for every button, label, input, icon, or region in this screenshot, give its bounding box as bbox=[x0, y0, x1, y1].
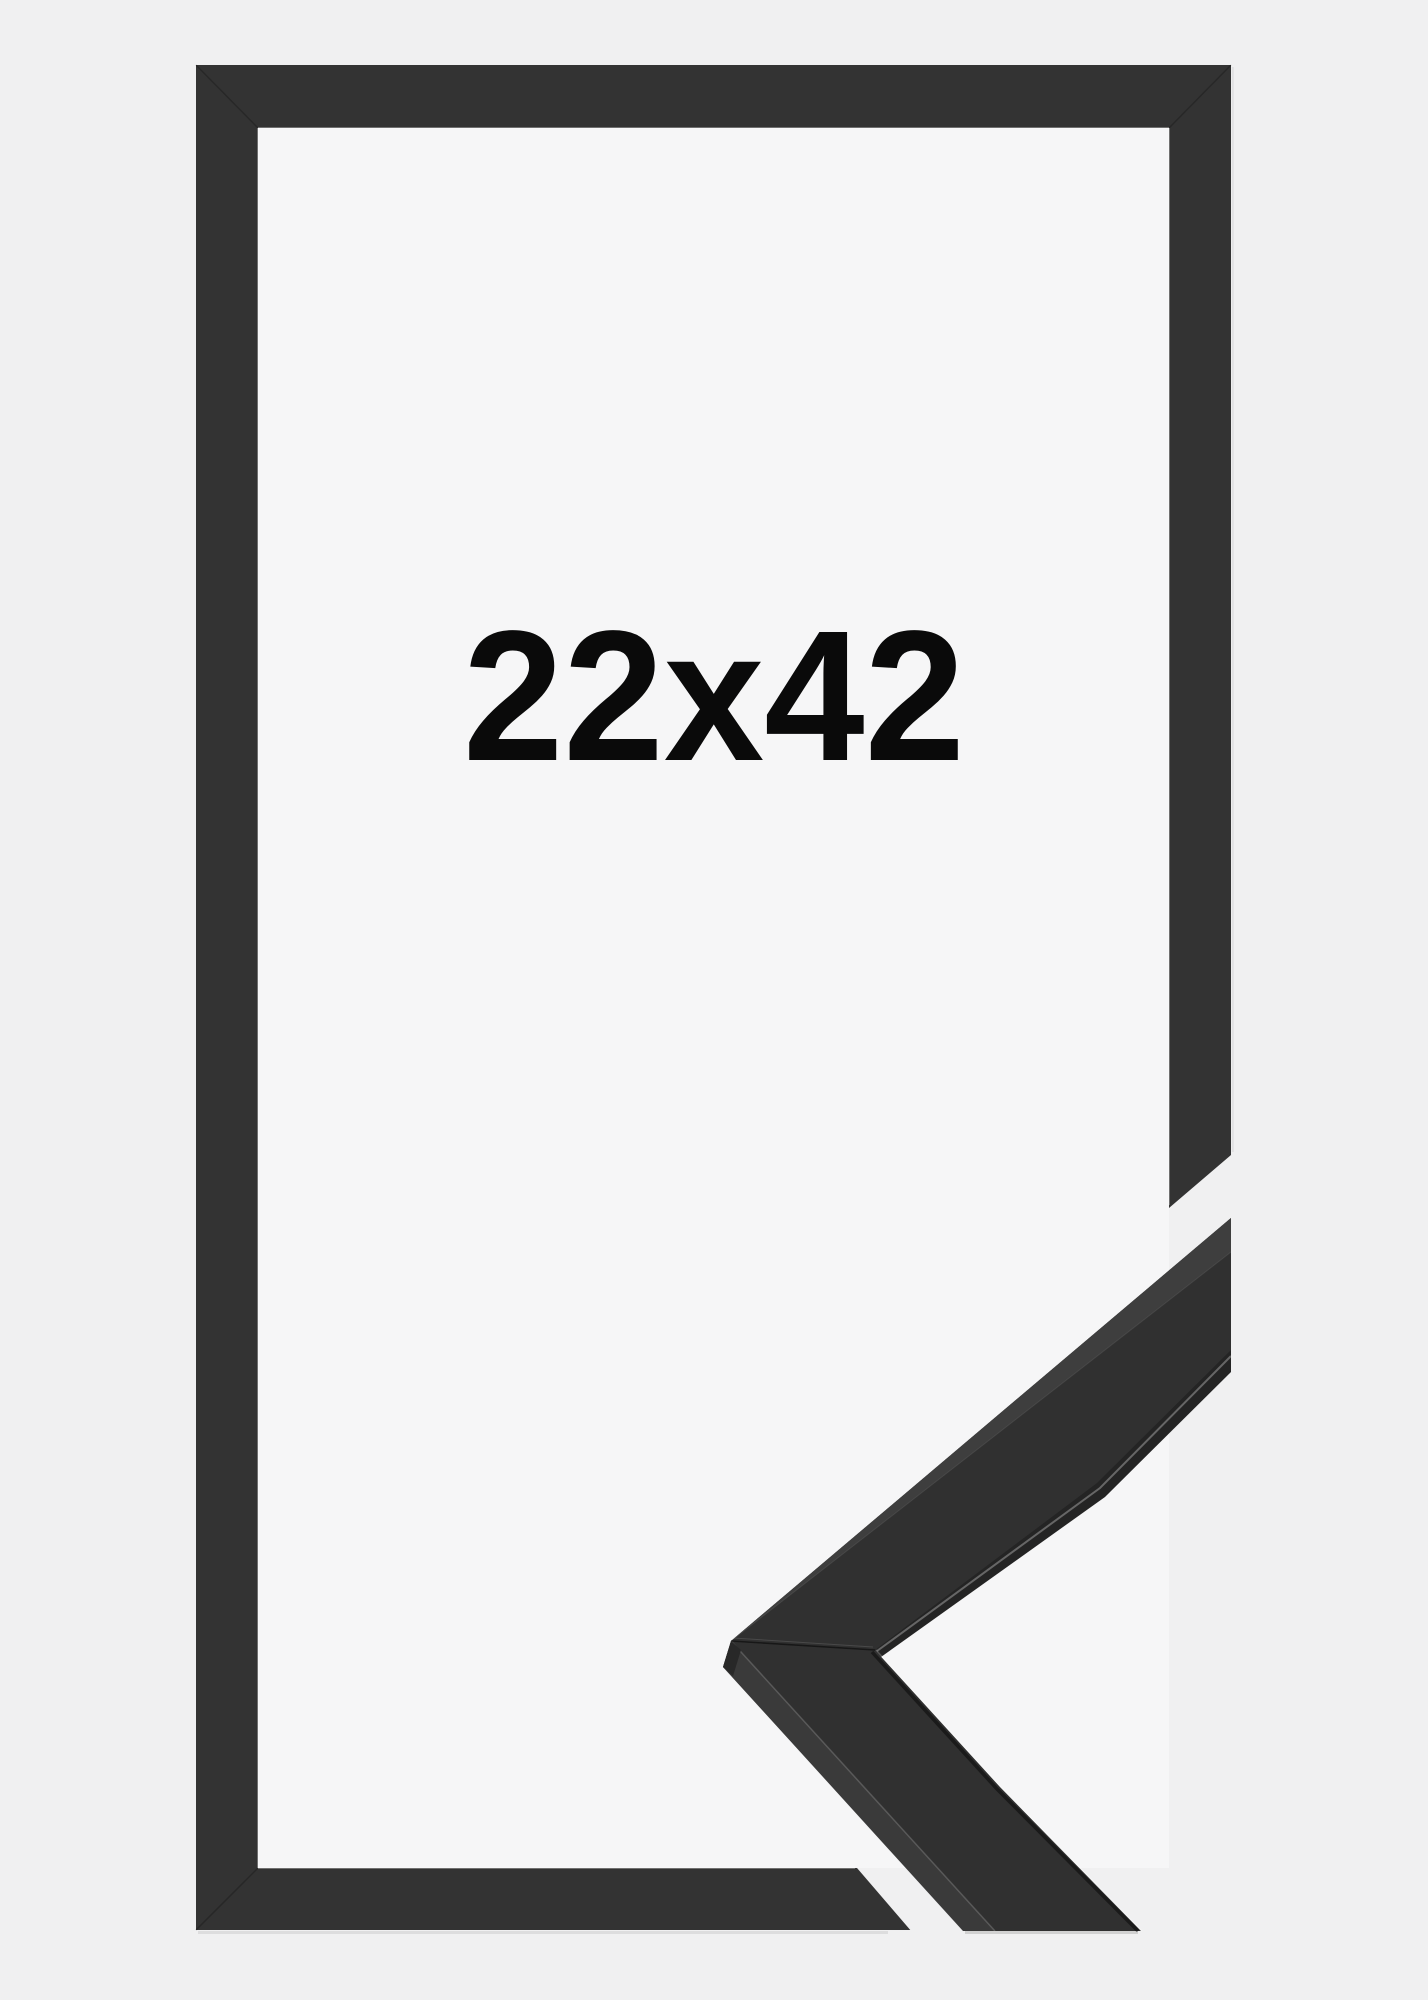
size-label: 22x42 bbox=[463, 593, 965, 800]
product-photo: 22x42 bbox=[0, 0, 1428, 2000]
frame-opening bbox=[258, 128, 1169, 1868]
frame-product-image: 22x42 bbox=[0, 0, 1428, 2000]
